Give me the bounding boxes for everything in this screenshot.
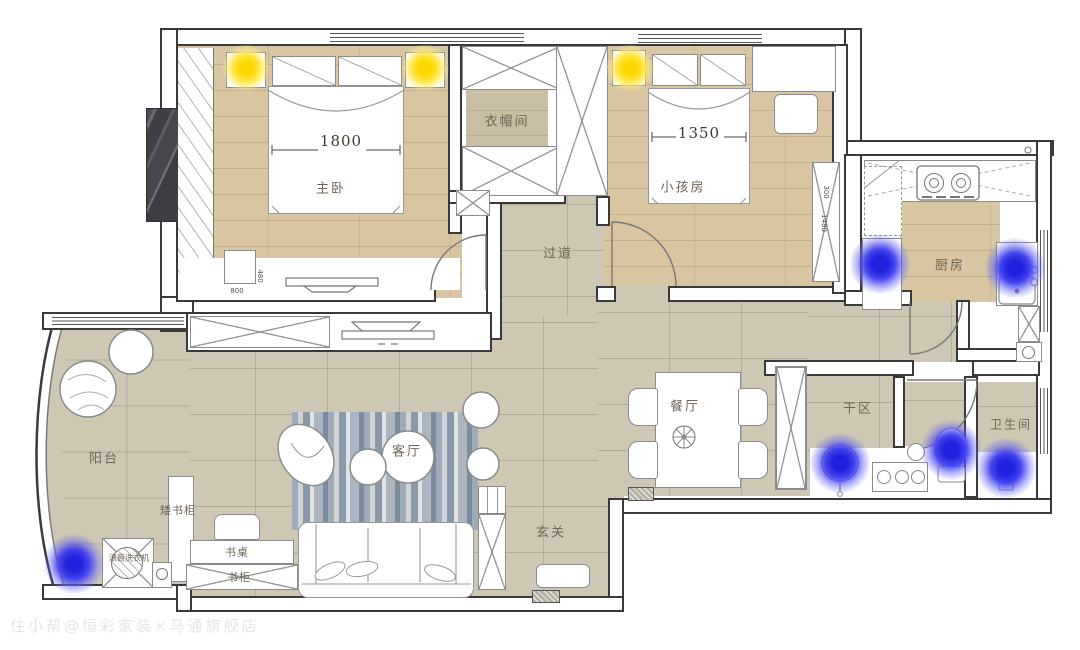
warm-light-master-left <box>222 44 270 92</box>
master-bed-dim: 1800 <box>320 132 362 150</box>
dining-table <box>655 372 741 488</box>
master-curtain-strip <box>178 48 214 290</box>
kitchen-utility-cabinet <box>1018 306 1040 342</box>
balcony-label: 阳台 <box>89 448 119 467</box>
cloakroom-cabinet-bottom <box>462 146 560 196</box>
cool-light-dry-basin <box>809 432 871 494</box>
warm-light-kids <box>606 44 654 92</box>
front-door-mat <box>628 487 654 501</box>
cloakroom-cabinet-top <box>462 46 560 90</box>
master-pillow-left <box>272 56 336 86</box>
kids-pillow-left <box>652 54 698 86</box>
wall-kids-left-stub <box>596 196 610 226</box>
kids-room-label: 小孩房 <box>660 177 705 196</box>
master-window <box>330 33 524 42</box>
wall-bath-top <box>972 360 1040 376</box>
cool-light-shower <box>975 437 1037 499</box>
balcony-chairs <box>60 330 153 417</box>
entryway-label: 玄关 <box>536 522 566 541</box>
dry-area-label: 干区 <box>843 398 873 417</box>
kids-pillow-right <box>700 54 746 86</box>
washing-machine-label: 滚筒洗衣机 <box>109 553 149 564</box>
kitchen-floor <box>900 200 1000 302</box>
dining-chair-br <box>738 441 768 479</box>
tv-wall-cabinet <box>190 316 330 348</box>
wall-master-bottom <box>176 288 436 302</box>
master-bay-window-marble <box>146 108 180 222</box>
kitchen-label: 厨房 <box>935 255 965 274</box>
hallway-label: 过道 <box>543 243 573 262</box>
laundry-bucket-circle <box>156 568 168 580</box>
master-dresser <box>224 250 256 284</box>
kitchen-fridge <box>864 166 902 236</box>
balcony-top-window <box>52 317 184 325</box>
kitchen-boiler-circle <box>1022 346 1035 359</box>
entry-door-mat <box>532 590 560 603</box>
dining-chair-tr <box>738 388 768 426</box>
dresser-depth-dim: 480 <box>256 269 264 282</box>
wall-kitchen-top <box>844 140 1054 156</box>
kids-cabinet-length-dim: 1480 <box>820 214 828 232</box>
cool-light-washer <box>43 533 105 595</box>
floor-plan: 主卧 1800 衣帽间 小孩房 1350 过道 厨房 餐厅 干区 卫生间 阳台 … <box>0 0 1080 650</box>
tall-wardrobe <box>556 46 608 196</box>
sofa <box>298 522 474 598</box>
cloakroom-label: 衣帽间 <box>484 111 529 130</box>
kids-cabinet-depth-dim: 300 <box>822 185 830 198</box>
kids-window <box>638 34 762 43</box>
wall-bottom-right <box>616 498 1052 514</box>
entry-bench <box>536 564 590 588</box>
dresser-width-dim: 800 <box>230 287 243 295</box>
dining-chair-tl <box>628 388 658 426</box>
study-chair <box>214 514 260 540</box>
dining-room-label: 餐厅 <box>670 396 700 415</box>
low-bookcase-label: 矮书柜 <box>160 502 196 518</box>
master-bedroom-label: 主卧 <box>316 178 346 197</box>
cool-light-kitchen-sink <box>984 237 1046 299</box>
wall-kids-bottom <box>668 286 848 302</box>
kids-desk-chair <box>774 94 818 134</box>
kids-desk <box>752 46 836 92</box>
wall-dry-toilet-partition <box>893 376 905 448</box>
cool-light-toilet <box>920 419 982 481</box>
wall-entry-step <box>608 498 624 612</box>
warm-light-master-right <box>401 44 449 92</box>
dry-area-vanity <box>872 462 928 492</box>
dining-chair-bl <box>628 441 658 479</box>
master-bottom-band <box>180 258 460 290</box>
master-pillow-right <box>338 56 402 86</box>
hallway-cabinet <box>456 190 490 216</box>
living-room-label: 客厅 <box>392 441 422 460</box>
desk-label: 书桌 <box>225 544 249 560</box>
dining-tall-cabinet <box>775 366 807 490</box>
living-room-rug <box>292 412 478 530</box>
bathroom-label: 卫生间 <box>990 416 1032 433</box>
entry-shoe-cabinet-lower <box>478 514 506 590</box>
kids-bed-dim: 1350 <box>678 124 720 142</box>
bookcase-label: 书柜 <box>227 569 251 585</box>
watermark: 住小帮@恒彩家装×马通旗舰店 <box>10 615 260 636</box>
entry-shoe-cabinet-top <box>478 486 506 514</box>
cool-light-kitchen-cabinet <box>849 233 911 295</box>
wall-kids-bottom-left <box>596 286 616 302</box>
bathroom-window <box>1040 388 1048 454</box>
